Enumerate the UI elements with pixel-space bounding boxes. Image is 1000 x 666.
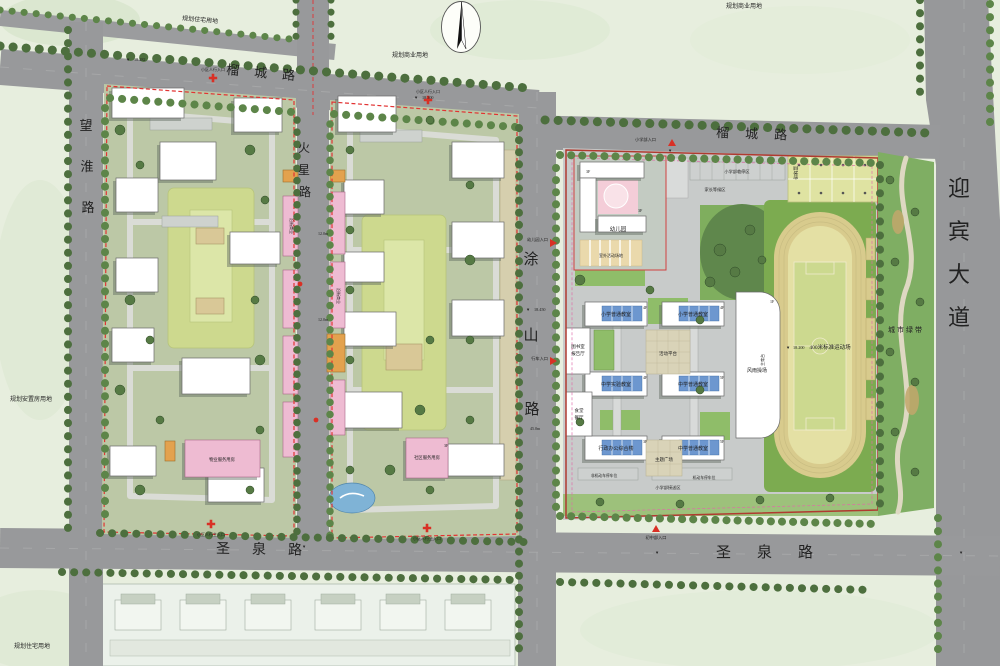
road-label-shengquan-east: 圣泉路 xyxy=(716,544,839,561)
label-canteen: 食堂 xyxy=(575,407,584,414)
label-admin: 行政办公综合楼 xyxy=(598,445,633,452)
label-entrance-side: 小区人行入口 xyxy=(416,88,440,94)
parking-row xyxy=(162,216,218,227)
label-car-parking: 机动车停车位 xyxy=(693,475,716,480)
svg-text:山: 山 xyxy=(523,327,538,344)
ghost-development xyxy=(95,584,515,666)
svg-text:路: 路 xyxy=(81,200,94,215)
road-label-wanghuai: 望 淮 路 xyxy=(79,118,94,215)
parcel-label: 规划商业用地 xyxy=(392,51,428,59)
label-dropoff: 小学部接送区 xyxy=(655,484,680,491)
label-kindergarten: 幼儿园 xyxy=(610,225,627,233)
svg-text:道: 道 xyxy=(948,305,970,330)
label-rostrum: 主席台 xyxy=(759,354,765,366)
parcel-label: 规划住宅用地 xyxy=(14,642,50,650)
elevation-icon: ▼ xyxy=(414,95,418,100)
elevation-icon: ▼ xyxy=(126,57,130,62)
svg-text:路: 路 xyxy=(299,184,311,199)
svg-text:路: 路 xyxy=(524,401,539,418)
label-entrance-kg: 幼儿园入口 xyxy=(527,236,548,243)
elevation-icon: ▼ xyxy=(655,550,659,555)
dim-label: 12.0m xyxy=(318,231,329,236)
elevation-icon: ▼ xyxy=(668,148,672,153)
label-entrance-primary: 小学部入口 xyxy=(635,136,656,143)
label-library: 报告厅 xyxy=(571,350,585,357)
label-greenbelt: 城市绿带 xyxy=(888,325,924,334)
label-middle-classroom: 中学普通教室 xyxy=(678,381,708,388)
label-plaza: 活动平台 xyxy=(659,350,677,357)
label-basketball: 篮球场 xyxy=(792,166,799,180)
parcel-label: 规划商业用地 xyxy=(726,2,762,10)
green-roof-building xyxy=(594,330,614,370)
label-middle-lab: 中学实验教室 xyxy=(601,381,631,388)
road-label-huoxing: 火 星 路 xyxy=(298,141,311,199)
site-plan: 榴城路 榴城路 圣泉路 圣泉路 望 淮 路 火 星 路 涂 山 路 迎 宾 大 … xyxy=(0,0,1000,666)
label-entrance-vehicle: 行车入口 xyxy=(531,355,548,362)
label-primary-classroom: 小学普通教室 xyxy=(601,311,631,318)
north-arrow-icon xyxy=(442,2,481,53)
label-parking-temp: 小学部临停区 xyxy=(724,168,749,175)
site-plan-canvas: 榴城路 榴城路 圣泉路 圣泉路 望 淮 路 火 星 路 涂 山 路 迎 宾 大 … xyxy=(0,0,1000,666)
label-entrance-main: 小区人行主入口 xyxy=(197,531,225,537)
label-gym: 风雨操场 xyxy=(747,367,767,374)
dim-label: 12.0m xyxy=(318,317,329,322)
road-label-shengquan-west: 圣泉路 xyxy=(216,540,324,559)
svg-text:淮: 淮 xyxy=(80,159,93,174)
svg-text:火: 火 xyxy=(298,141,310,155)
canteen-building xyxy=(566,392,592,436)
label-waiting-area: 家长等候区 xyxy=(705,186,726,193)
label-entrance-side: 小区人行入口 xyxy=(201,66,225,72)
label-middle-classroom: 中学普通教室 xyxy=(678,445,708,452)
parcel-label: 规划安置房用地 xyxy=(10,395,52,403)
label-commercial: 沿街商业 xyxy=(336,288,342,304)
elevation-value: 18.300 xyxy=(422,95,434,100)
label-bike-parking: 非机动车停车位 xyxy=(591,473,618,478)
svg-text:宾: 宾 xyxy=(948,219,970,244)
svg-text:涂: 涂 xyxy=(523,251,538,268)
svg-text:大: 大 xyxy=(948,262,970,287)
label-commercial: 沿街商业 xyxy=(289,218,295,234)
elevation-icon: ▼ xyxy=(959,550,963,555)
school-site xyxy=(563,148,878,520)
label-community-east: 社区服务用房 xyxy=(414,454,440,461)
label-track: 400米标准运动场 xyxy=(809,343,851,351)
road-shengquan xyxy=(0,548,1000,556)
urban-greenbelt xyxy=(878,152,934,516)
label-entrance-junior: 初中部入口 xyxy=(646,534,667,541)
label-library: 图书室 xyxy=(571,343,585,350)
elevation-icon: ▼ xyxy=(302,544,306,549)
label-primary-classroom: 小学普通教室 xyxy=(678,311,708,318)
label-entrance-main: 小区人行主入口 xyxy=(413,535,441,541)
svg-text:星: 星 xyxy=(298,163,310,177)
road-label-liucheng-east: 榴城路 xyxy=(716,125,803,143)
label-canteen: 餐厅 xyxy=(575,414,584,421)
svg-text:迎: 迎 xyxy=(948,176,970,201)
elevation-value: 18.450 xyxy=(534,307,546,312)
elevation-value: 18.282 xyxy=(134,57,146,62)
label-theme-plaza: 主题广场 xyxy=(655,456,673,463)
label-community-west: 物业服务用房 xyxy=(209,456,235,463)
label-outdoor-area: 室外活动场地 xyxy=(599,252,623,258)
elevation-icon: ▼ xyxy=(786,345,790,350)
landscape-pond xyxy=(329,483,375,513)
svg-text:望: 望 xyxy=(79,118,92,133)
dim-label: 45.0m xyxy=(530,426,541,431)
gym-building xyxy=(736,292,780,438)
elevation-value: 18.200 xyxy=(793,345,805,350)
elevation-icon: ▼ xyxy=(526,307,530,312)
